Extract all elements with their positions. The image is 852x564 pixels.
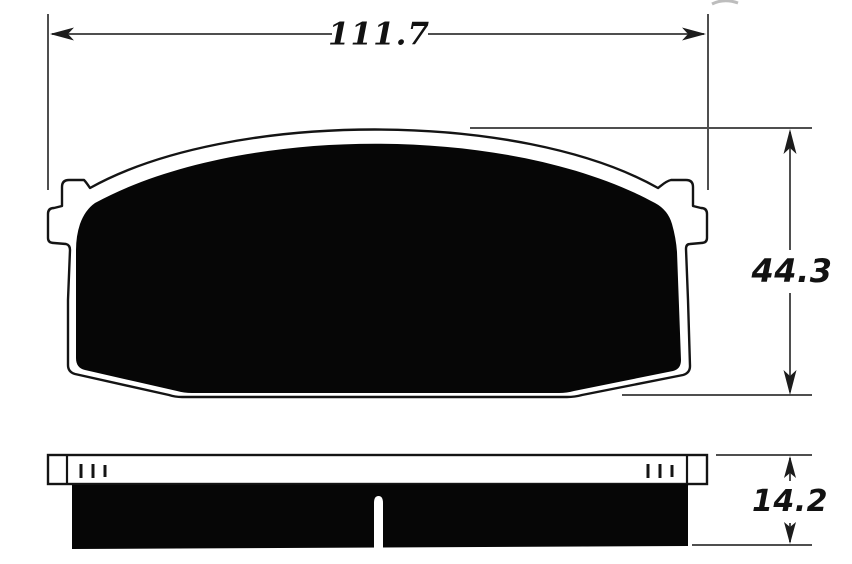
scan-artifact [712, 1, 738, 4]
height-dimension-label: 44.3 [752, 255, 833, 287]
side-view [48, 455, 707, 549]
wear-slot [374, 496, 383, 549]
thickness-dimension-label: 14.2 [752, 487, 828, 517]
friction-material-front [76, 144, 681, 393]
front-view [48, 130, 707, 398]
width-dimension-label: 111.7 [328, 20, 430, 51]
brake-pad-drawing [0, 0, 852, 564]
backing-plate-side [48, 455, 707, 484]
technical-drawing-canvas: 111.7 44.3 14.2 [0, 0, 852, 564]
